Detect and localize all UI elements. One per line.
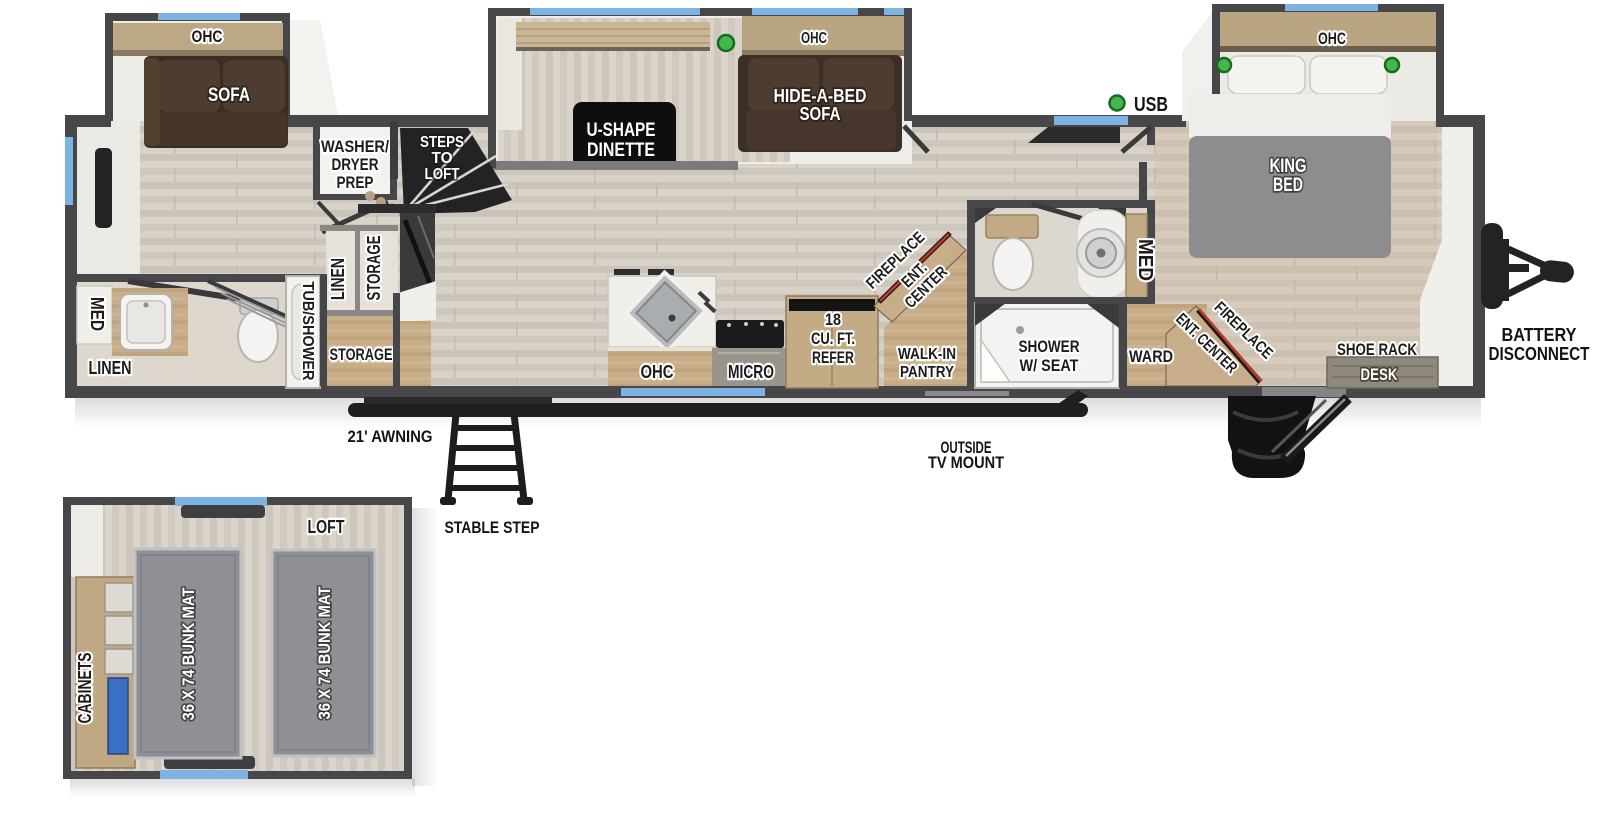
svg-text:OHC: OHC — [192, 27, 223, 46]
svg-text:PREP: PREP — [337, 173, 374, 192]
svg-text:DISCONNECT: DISCONNECT — [1489, 344, 1590, 364]
svg-text:MED: MED — [87, 297, 107, 331]
svg-text:36 X 74 BUNK MAT: 36 X 74 BUNK MAT — [179, 587, 198, 721]
svg-text:KING: KING — [1270, 156, 1307, 177]
svg-text:PANTRY: PANTRY — [900, 364, 954, 381]
svg-text:LOFT: LOFT — [308, 517, 345, 537]
svg-text:SHOE RACK: SHOE RACK — [1337, 340, 1418, 359]
svg-text:CU. FT.: CU. FT. — [811, 329, 855, 348]
svg-text:TO: TO — [432, 150, 453, 167]
svg-text:SOFA: SOFA — [800, 104, 841, 124]
svg-text:BED: BED — [1273, 175, 1303, 196]
svg-text:STORAGE: STORAGE — [364, 236, 384, 301]
svg-text:TUB/SHOWER: TUB/SHOWER — [299, 282, 316, 381]
svg-text:SHOWER: SHOWER — [1019, 337, 1080, 356]
svg-text:LINEN: LINEN — [89, 358, 132, 378]
svg-text:21' AWNING: 21' AWNING — [348, 427, 433, 446]
svg-text:WARD: WARD — [1129, 347, 1173, 366]
svg-text:SOFA: SOFA — [208, 85, 250, 106]
svg-text:36 X 74 BUNK MAT: 36 X 74 BUNK MAT — [315, 586, 334, 720]
svg-text:W/ SEAT: W/ SEAT — [1020, 356, 1080, 375]
svg-text:STABLE STEP: STABLE STEP — [445, 518, 540, 537]
svg-text:REFER: REFER — [812, 348, 854, 367]
svg-text:18: 18 — [825, 310, 841, 329]
svg-text:U-SHAPE: U-SHAPE — [587, 120, 656, 141]
svg-text:DINETTE: DINETTE — [587, 140, 655, 161]
svg-text:LOFT: LOFT — [425, 166, 460, 183]
svg-text:MED: MED — [1134, 239, 1156, 281]
svg-text:STORAGE: STORAGE — [330, 345, 393, 364]
svg-text:LINEN: LINEN — [328, 258, 348, 300]
svg-text:DESK: DESK — [1361, 365, 1399, 384]
svg-text:WASHER/: WASHER/ — [321, 137, 389, 156]
svg-text:TV MOUNT: TV MOUNT — [928, 453, 1005, 472]
svg-text:MICRO: MICRO — [728, 362, 774, 382]
svg-text:HIDE-A-BED: HIDE-A-BED — [774, 86, 867, 106]
svg-text:WALK-IN: WALK-IN — [898, 346, 956, 363]
svg-text:OHC: OHC — [641, 362, 674, 382]
svg-text:BATTERY: BATTERY — [1502, 325, 1577, 345]
svg-text:CABINETS: CABINETS — [75, 653, 95, 724]
svg-text:DRYER: DRYER — [332, 155, 379, 174]
svg-text:OHC: OHC — [1318, 29, 1346, 48]
svg-text:OHC: OHC — [801, 30, 827, 47]
svg-text:USB: USB — [1134, 94, 1168, 116]
svg-text:STEPS: STEPS — [420, 134, 464, 151]
